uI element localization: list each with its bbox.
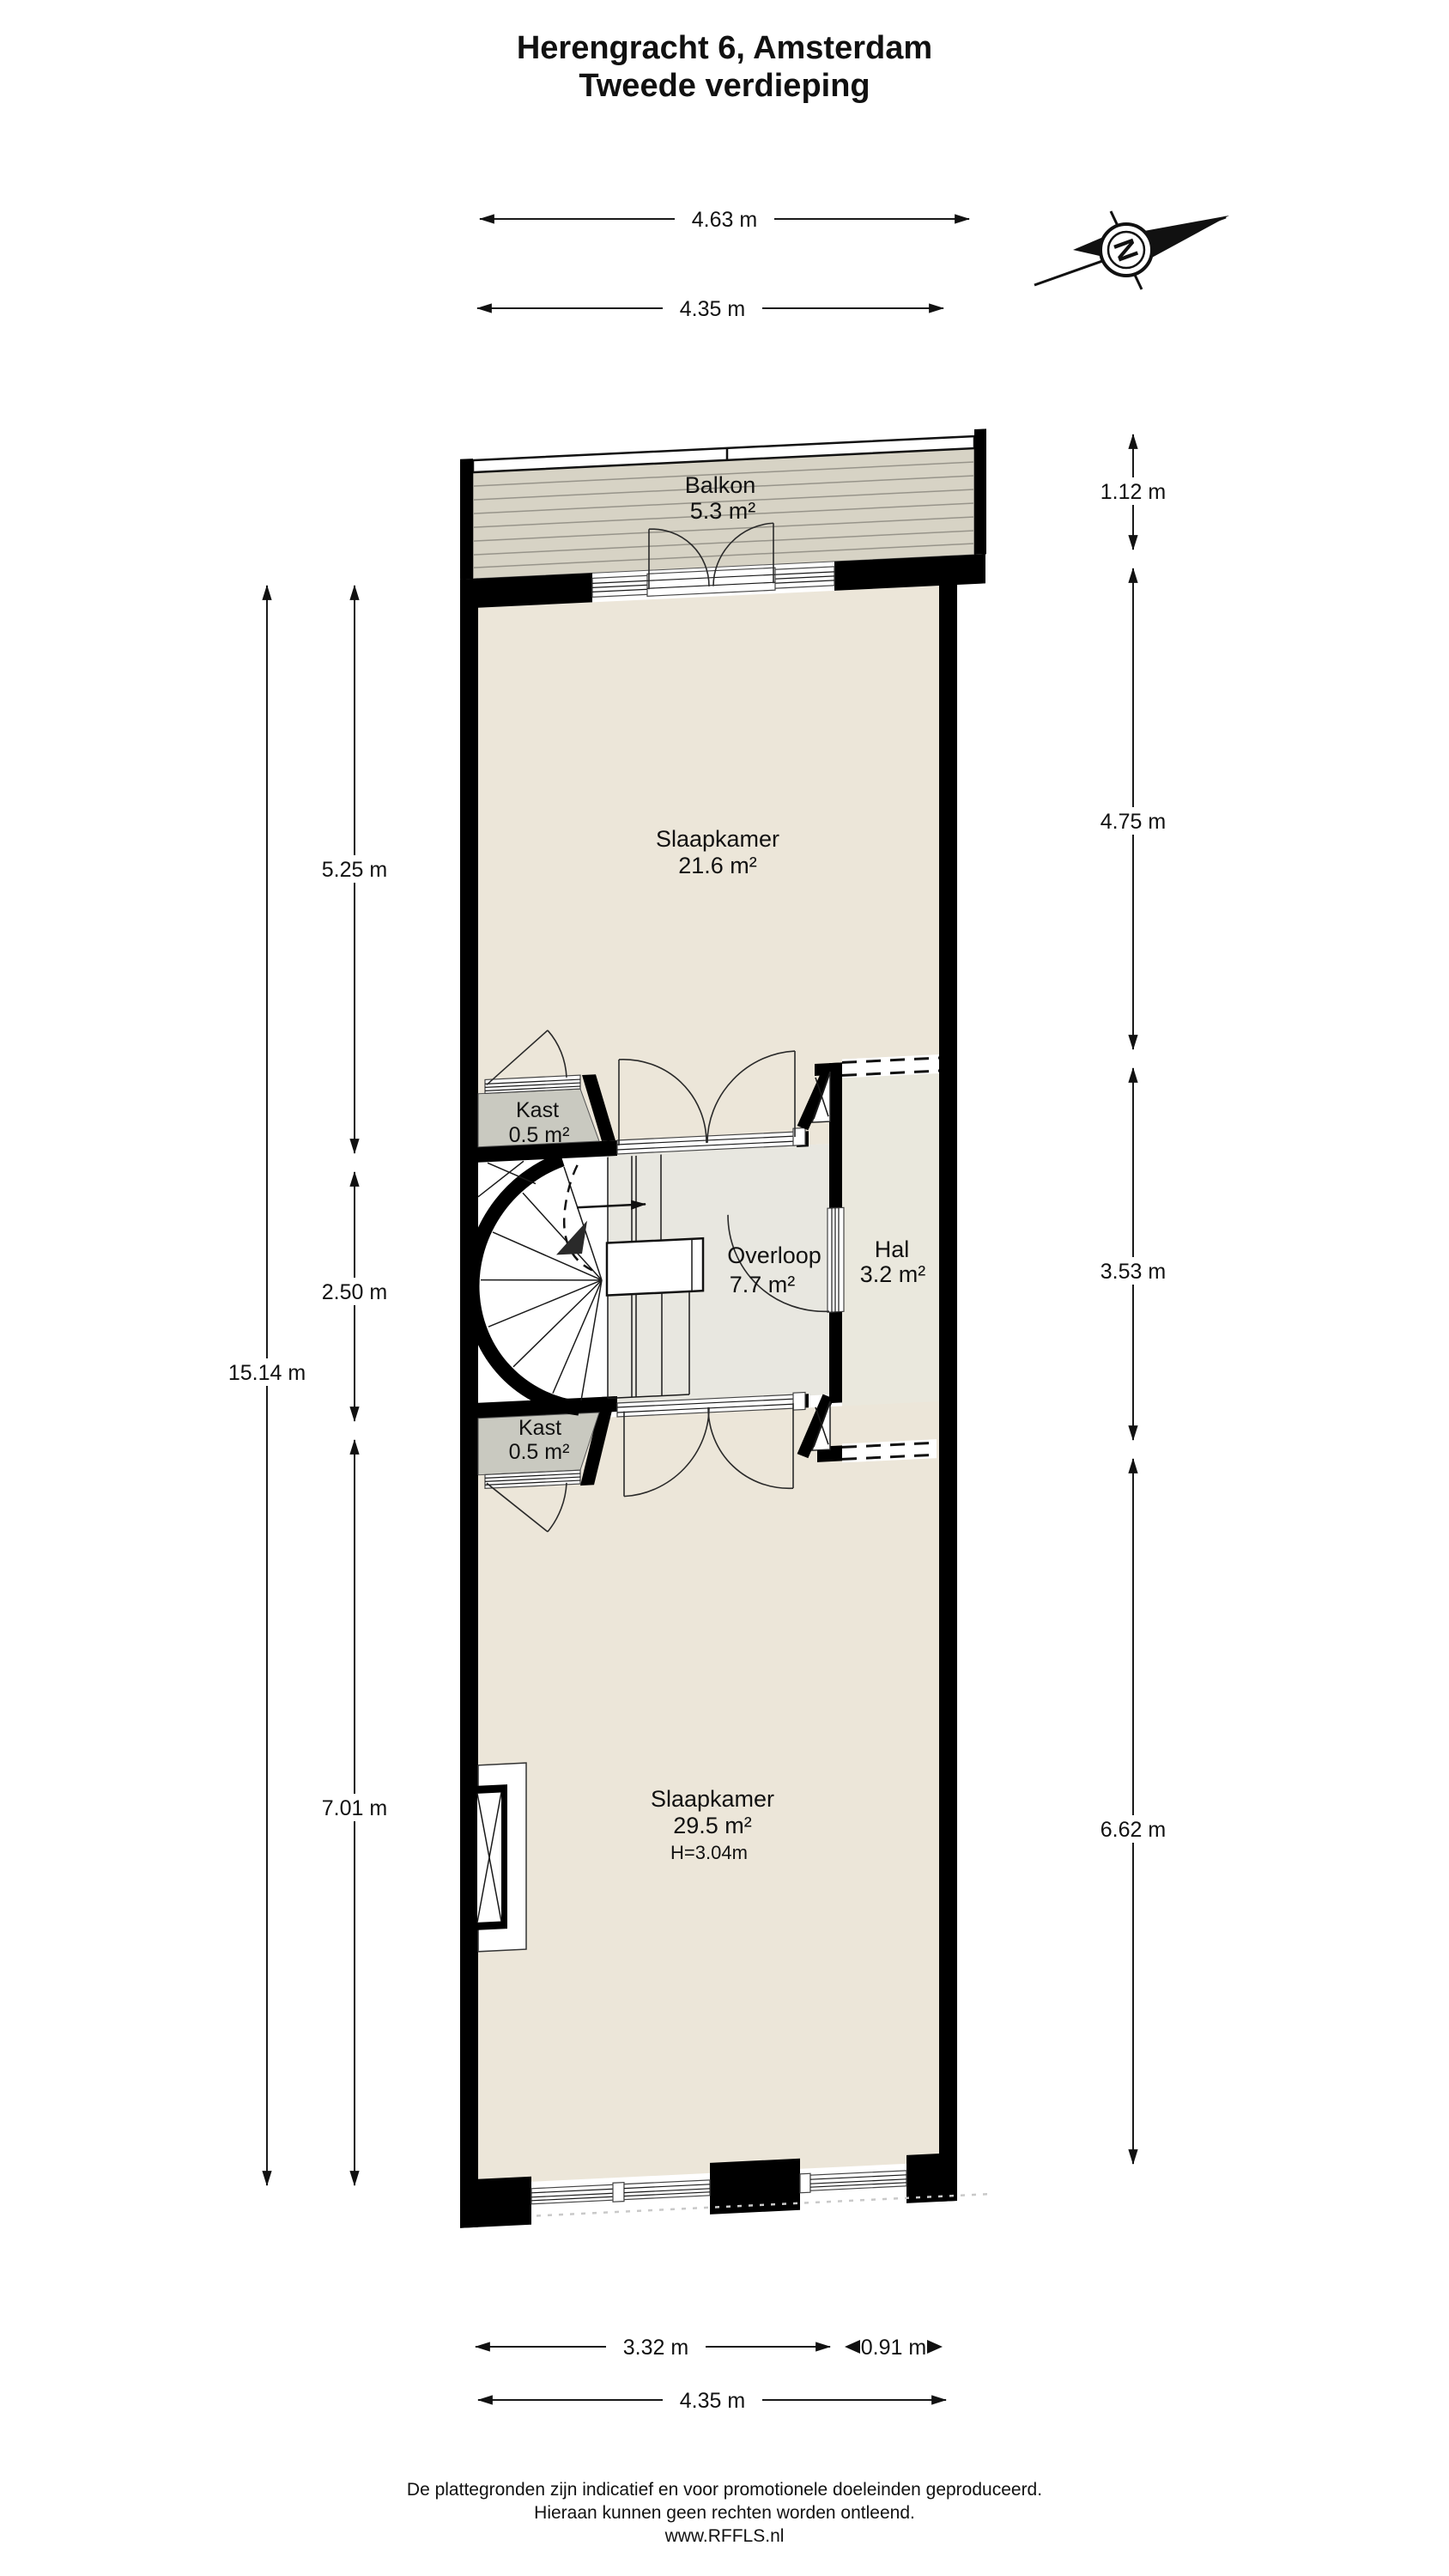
stairwell-floor	[478, 1155, 608, 1419]
dim-top-435: 4.35 m	[477, 294, 943, 323]
stair-landing	[607, 1238, 703, 1295]
label-balkon: Balkon 5.3 m²	[685, 472, 756, 524]
svg-text:4.63 m: 4.63 m	[692, 208, 757, 232]
compass-north-icon: N	[1034, 211, 1229, 289]
svg-text:1.12 m: 1.12 m	[1100, 480, 1166, 504]
svg-text:H=3.04m: H=3.04m	[670, 1842, 748, 1863]
svg-text:Kast: Kast	[518, 1416, 561, 1440]
dim-right-475: 4.75 m	[1083, 568, 1183, 1049]
label-kast-2: Kast 0.5 m²	[509, 1416, 570, 1464]
svg-text:0.5 m²: 0.5 m²	[509, 1123, 570, 1147]
dim-right-662: 6.62 m	[1083, 1459, 1183, 2164]
footer-line-2: Hieraan kunnen geen rechten worden ontle…	[534, 2503, 915, 2523]
footer-disclaimer: De plattegronden zijn indicatief en voor…	[407, 2480, 1042, 2546]
dim-left-525: 5.25 m	[305, 586, 404, 1153]
svg-text:2.50 m: 2.50 m	[322, 1280, 387, 1304]
title-line-2: Tweede verdieping	[579, 68, 870, 104]
svg-text:Balkon: Balkon	[685, 472, 756, 498]
svg-text:6.62 m: 6.62 m	[1100, 1818, 1166, 1842]
page-title: Herengracht 6, Amsterdam Tweede verdiepi…	[517, 30, 932, 104]
svg-text:Slaapkamer: Slaapkamer	[651, 1786, 774, 1812]
dim-bottom-332: 3.32 m	[476, 2332, 830, 2361]
dim-right-112: 1.12 m	[1083, 434, 1183, 550]
svg-text:7.01 m: 7.01 m	[322, 1796, 387, 1820]
dim-bottom-435: 4.35 m	[478, 2385, 946, 2415]
svg-text:3.32 m: 3.32 m	[623, 2336, 688, 2360]
svg-text:0.5 m²: 0.5 m²	[509, 1440, 570, 1464]
fireplace	[471, 1763, 526, 1952]
dim-bottom-091: 0.91 m	[845, 2336, 943, 2360]
svg-text:Slaapkamer: Slaapkamer	[656, 826, 779, 852]
dim-top-463: 4.63 m	[480, 204, 969, 234]
dim-left-1514: 15.14 m	[209, 586, 326, 2185]
svg-text:3.2 m²: 3.2 m²	[860, 1261, 926, 1287]
svg-text:4.35 m: 4.35 m	[680, 297, 745, 321]
dim-left-701: 7.01 m	[305, 1440, 404, 2185]
svg-text:5.3 m²: 5.3 m²	[690, 498, 756, 524]
svg-text:5.25 m: 5.25 m	[322, 858, 387, 882]
title-line-1: Herengracht 6, Amsterdam	[517, 30, 932, 66]
svg-text:0.91 m: 0.91 m	[861, 2336, 926, 2360]
svg-text:15.14 m: 15.14 m	[228, 1361, 306, 1385]
svg-text:29.5 m²: 29.5 m²	[673, 1813, 752, 1838]
svg-text:4.75 m: 4.75 m	[1100, 810, 1166, 834]
svg-text:4.35 m: 4.35 m	[680, 2389, 745, 2413]
svg-text:3.53 m: 3.53 m	[1100, 1260, 1166, 1284]
floorplan-svg: Herengracht 6, Amsterdam Tweede verdiepi…	[0, 0, 1449, 2576]
building	[460, 428, 987, 2227]
svg-text:Kast: Kast	[516, 1098, 559, 1122]
svg-text:Overloop: Overloop	[727, 1242, 822, 1268]
floorplan-page: Herengracht 6, Amsterdam Tweede verdiepi…	[0, 0, 1449, 2576]
footer-line-1: De plattegronden zijn indicatief en voor…	[407, 2480, 1042, 2500]
svg-text:Hal: Hal	[875, 1236, 910, 1262]
svg-text:21.6 m²: 21.6 m²	[678, 853, 757, 878]
dim-right-353: 3.53 m	[1083, 1068, 1183, 1440]
footer-link: www.RFFLS.nl	[664, 2526, 785, 2546]
svg-text:7.7 m²: 7.7 m²	[730, 1272, 796, 1297]
